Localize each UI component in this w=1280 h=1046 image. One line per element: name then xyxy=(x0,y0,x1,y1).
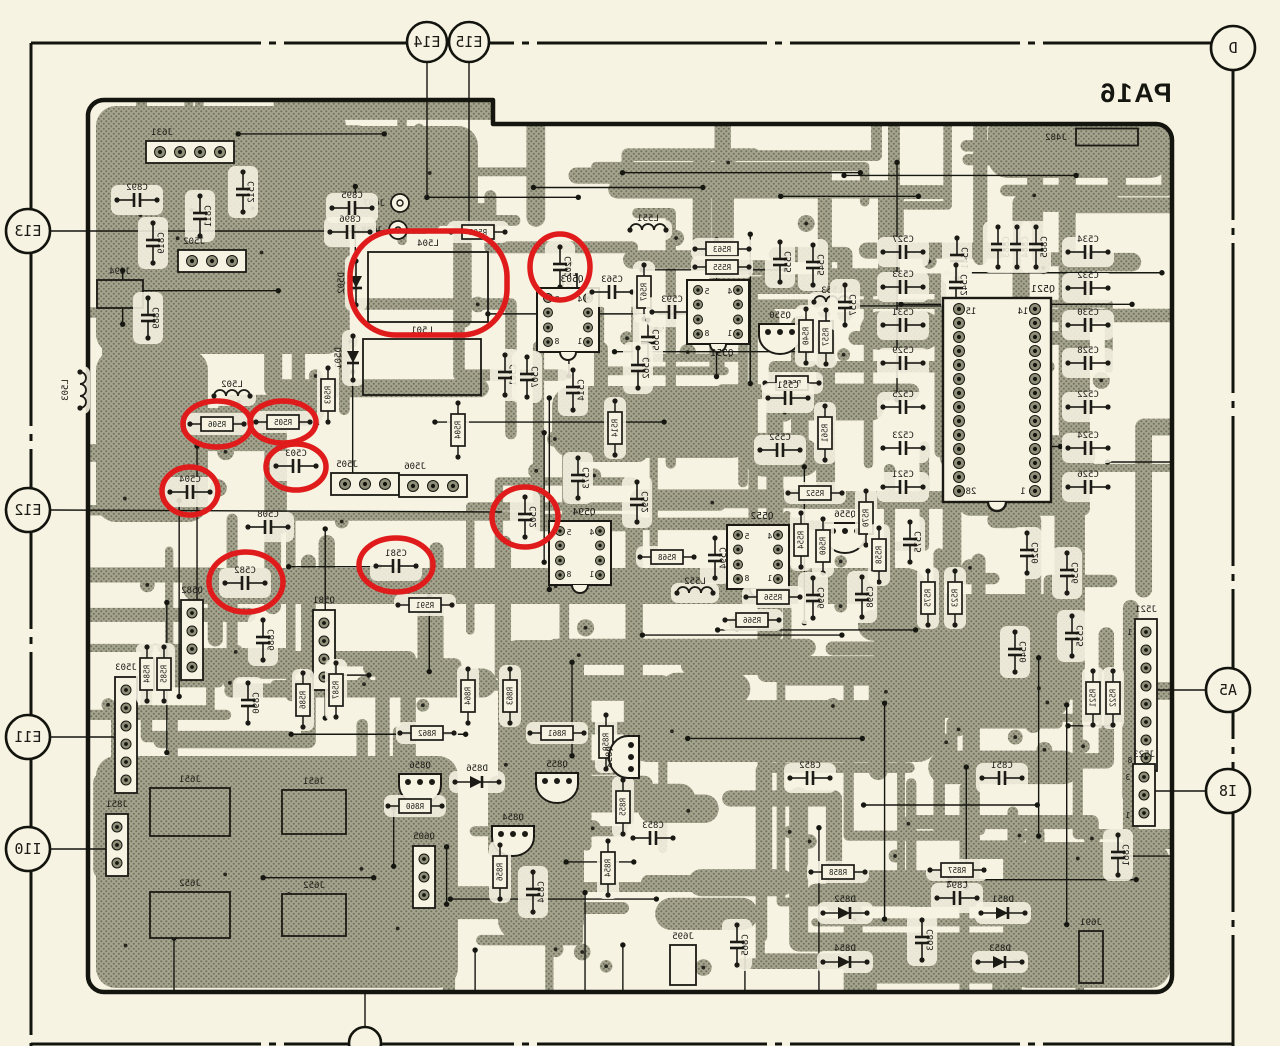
svg-text:C819: C819 xyxy=(157,232,167,254)
svg-text:J631: J631 xyxy=(151,128,173,138)
svg-text:C525: C525 xyxy=(892,390,914,400)
svg-text:28: 28 xyxy=(966,487,977,497)
component-J506: J506 xyxy=(399,462,467,497)
svg-text:E11: E11 xyxy=(14,728,41,746)
svg-text:C853: C853 xyxy=(642,821,664,831)
component-R568: R568 xyxy=(636,546,698,568)
svg-text:C886: C886 xyxy=(267,629,277,651)
component-C555: C555 xyxy=(765,236,795,288)
component-C562: C562 xyxy=(623,342,653,394)
component-C520: C520 xyxy=(1012,527,1042,579)
svg-text:C542: C542 xyxy=(960,274,970,296)
svg-text:C582: C582 xyxy=(234,566,256,576)
component-R864: R864 xyxy=(457,665,479,727)
svg-text:Q550: Q550 xyxy=(769,311,791,321)
svg-text:1: 1 xyxy=(767,574,772,583)
svg-text:1: 1 xyxy=(1125,811,1130,820)
svg-text:R505: R505 xyxy=(274,418,292,427)
component-R506: R506 xyxy=(186,413,248,435)
component-C534: C534 xyxy=(1062,235,1114,267)
svg-text:C508: C508 xyxy=(257,510,279,520)
svg-text:I8: I8 xyxy=(1219,782,1237,800)
svg-text:Q605: Q605 xyxy=(413,832,435,842)
component-C512: C512 xyxy=(228,166,258,218)
component-C540: C540 xyxy=(1000,626,1030,678)
svg-text:C533: C533 xyxy=(892,270,914,280)
svg-text:J695: J695 xyxy=(672,932,694,942)
component-C503: C503 xyxy=(270,449,322,481)
grid-ref-E13: E13 xyxy=(6,209,50,253)
svg-text:Q552: Q552 xyxy=(751,511,774,522)
svg-text:C852: C852 xyxy=(799,761,821,771)
svg-text:R586: R586 xyxy=(299,691,308,710)
svg-text:R521: R521 xyxy=(1089,689,1098,707)
component-C524: C524 xyxy=(1062,431,1114,463)
component-J695: J695 xyxy=(670,932,696,985)
svg-text:C865: C865 xyxy=(741,934,751,956)
svg-text:8: 8 xyxy=(704,329,709,338)
svg-text:R561: R561 xyxy=(821,424,830,442)
component-C535: C535 xyxy=(1057,610,1087,662)
svg-text:R504: R504 xyxy=(454,421,463,440)
svg-text:C523: C523 xyxy=(892,431,914,441)
svg-text:E14: E14 xyxy=(413,33,440,51)
svg-text:1: 1 xyxy=(577,337,582,346)
svg-text:1: 1 xyxy=(1127,628,1132,637)
svg-text:C573: C573 xyxy=(582,467,592,489)
svg-text:E13: E13 xyxy=(14,222,41,240)
component-C504: C504 xyxy=(164,475,216,507)
component-C502: C502 xyxy=(510,491,540,543)
svg-text:C592: C592 xyxy=(641,491,651,513)
component-C529: C529 xyxy=(877,346,929,378)
component-R863: R863 xyxy=(499,665,521,727)
component-C819: C819 xyxy=(138,217,168,269)
svg-text:L503: L503 xyxy=(61,379,71,401)
svg-text:1: 1 xyxy=(727,329,732,338)
grid-ref-I10: I10 xyxy=(6,827,50,871)
svg-text:R585: R585 xyxy=(160,665,169,683)
svg-text:8: 8 xyxy=(554,337,559,346)
svg-text:C522: C522 xyxy=(1077,390,1099,400)
component-R523: R523 xyxy=(944,567,966,629)
svg-text:D853: D853 xyxy=(989,944,1011,954)
component-C507: C507 xyxy=(512,351,542,403)
grid-ref-E14: E14 xyxy=(407,22,447,62)
svg-text:1: 1 xyxy=(1020,487,1025,497)
component-C889: C889 xyxy=(133,292,163,344)
svg-text:8: 8 xyxy=(566,570,571,579)
component-C885: C885 xyxy=(1021,221,1051,273)
svg-text:R587: R587 xyxy=(332,681,341,699)
svg-text:J505: J505 xyxy=(336,460,358,470)
svg-text:5: 5 xyxy=(566,528,571,537)
svg-text:C895: C895 xyxy=(341,191,363,201)
component-C581: C581 xyxy=(370,549,422,581)
svg-text:C565: C565 xyxy=(652,329,662,351)
svg-text:5: 5 xyxy=(704,287,709,296)
component-R505: R505 xyxy=(252,411,314,433)
svg-text:C540: C540 xyxy=(1019,641,1029,663)
component-C563: C563 xyxy=(586,275,638,307)
component-C854: C854 xyxy=(518,866,548,918)
component-R857: R857 xyxy=(926,859,988,881)
svg-text:R567: R567 xyxy=(640,283,649,301)
svg-text:Q503: Q503 xyxy=(561,274,584,285)
svg-text:C563: C563 xyxy=(601,275,623,285)
component-C890: C890 xyxy=(233,677,263,729)
grid-ref-E11: E11 xyxy=(6,715,50,759)
svg-text:4: 4 xyxy=(589,528,594,537)
svg-text:Q582: Q582 xyxy=(181,586,203,596)
component-C892: C892 xyxy=(111,183,163,215)
component-C551: C551 xyxy=(762,381,814,413)
pcb-diagram: J631C892C811C512C819J502JG94C889L503L502… xyxy=(0,0,1280,1046)
svg-text:L504: L504 xyxy=(417,239,439,249)
component-C522: C522 xyxy=(1062,390,1114,422)
svg-text:A5: A5 xyxy=(1219,681,1237,699)
svg-text:Q856: Q856 xyxy=(409,761,431,771)
component-C521: C521 xyxy=(877,470,929,502)
svg-text:L552: L552 xyxy=(684,577,706,587)
svg-text:R861: R861 xyxy=(548,729,566,738)
svg-text:R864: R864 xyxy=(464,687,473,706)
svg-text:R556: R556 xyxy=(763,593,782,602)
svg-text:C861: C861 xyxy=(1122,844,1132,866)
svg-text:R575: R575 xyxy=(924,589,933,607)
component-C573: C573 xyxy=(563,452,593,504)
component-C523: C523 xyxy=(877,431,929,463)
svg-text:C892: C892 xyxy=(126,183,148,193)
svg-text:C575: C575 xyxy=(914,531,924,553)
svg-text:Q853: Q853 xyxy=(605,746,615,768)
component-C545: C545 xyxy=(798,239,828,291)
svg-text:J651: J651 xyxy=(303,777,325,787)
svg-text:C512: C512 xyxy=(247,181,257,203)
svg-text:Q854: Q854 xyxy=(502,813,524,823)
component-C528: C528 xyxy=(1062,346,1114,378)
component-C526: C526 xyxy=(1062,470,1114,502)
component-C531: C531 xyxy=(877,308,929,340)
component-R587: R587 xyxy=(325,659,347,721)
component-R575: R575 xyxy=(917,567,939,629)
svg-text:R856: R856 xyxy=(496,863,505,882)
component-R556: R556 xyxy=(742,586,804,608)
component-R561: R561 xyxy=(814,402,836,464)
component-R522: R522 xyxy=(1102,667,1124,729)
svg-text:1: 1 xyxy=(589,570,594,579)
component-J503: J503 xyxy=(115,663,137,793)
svg-text:L551: L551 xyxy=(637,214,659,224)
component-C598: C598 xyxy=(847,571,877,623)
component-C533: C533 xyxy=(877,270,929,302)
component-R560: R560 xyxy=(812,515,834,577)
component-R858: R858 xyxy=(807,861,869,883)
svg-text:15: 15 xyxy=(966,307,977,317)
svg-text:C896: C896 xyxy=(339,215,361,225)
svg-text:3: 3 xyxy=(1125,773,1130,782)
svg-text:J652: J652 xyxy=(179,879,201,889)
svg-text:R857: R857 xyxy=(948,866,966,875)
svg-text:J502: J502 xyxy=(183,237,205,247)
svg-text:C581: C581 xyxy=(385,549,407,559)
board-name-label: PA16 xyxy=(1085,78,1185,109)
component-C811: C811 xyxy=(185,190,215,242)
component-R856: R856 xyxy=(489,841,511,903)
component-C525: C525 xyxy=(877,390,929,422)
component-R854: R854 xyxy=(597,837,619,899)
svg-text:C526: C526 xyxy=(1077,470,1099,480)
svg-text:R591: R591 xyxy=(416,601,434,610)
component-R585: R585 xyxy=(153,643,175,705)
svg-text:R523: R523 xyxy=(951,589,960,607)
svg-text:C854: C854 xyxy=(537,881,547,903)
component-R540: R540 xyxy=(795,305,817,367)
svg-text:R584: R584 xyxy=(143,665,152,684)
svg-text:R566: R566 xyxy=(742,616,761,625)
svg-text:J652: J652 xyxy=(303,881,325,891)
svg-text:E12: E12 xyxy=(14,501,41,519)
component-C530: C530 xyxy=(1062,308,1114,340)
component-C592: C592 xyxy=(622,476,652,528)
svg-text:C545: C545 xyxy=(817,254,827,276)
svg-text:R863: R863 xyxy=(506,687,515,705)
grid-ref-D: D xyxy=(1211,26,1255,70)
svg-text:L502: L502 xyxy=(221,380,243,390)
component-R862: R862 xyxy=(396,722,458,744)
svg-text:C507: C507 xyxy=(531,366,541,388)
component-C536: C536 xyxy=(1052,547,1082,599)
svg-text:C894: C894 xyxy=(946,881,968,891)
grid-ref-E12: E12 xyxy=(6,488,50,532)
svg-text:D851: D851 xyxy=(992,895,1014,905)
component-Q521: 1514281Q521 xyxy=(943,284,1055,511)
svg-text:R563: R563 xyxy=(713,245,731,254)
svg-text:C531: C531 xyxy=(892,308,914,318)
svg-text:J523: J523 xyxy=(1133,750,1155,760)
svg-text:C890: C890 xyxy=(252,692,262,714)
svg-text:C532: C532 xyxy=(1077,271,1099,281)
svg-text:R503: R503 xyxy=(324,386,333,404)
component-C851: C851 xyxy=(976,761,1028,793)
svg-text:J691: J691 xyxy=(1080,918,1102,928)
svg-text:C552: C552 xyxy=(769,433,791,443)
svg-text:J851: J851 xyxy=(106,800,128,810)
svg-text:R506: R506 xyxy=(207,420,226,429)
svg-text:C502: C502 xyxy=(529,506,539,528)
svg-text:8: 8 xyxy=(1127,756,1132,765)
grid-ref-I8: I8 xyxy=(1206,769,1250,813)
component-R586: R586 xyxy=(292,669,314,731)
svg-text:E15: E15 xyxy=(455,33,482,51)
svg-text:Q551: Q551 xyxy=(710,348,733,359)
svg-text:R560: R560 xyxy=(819,537,828,556)
component-Q582: Q582 xyxy=(181,586,203,680)
grid-ref-A5: A5 xyxy=(1206,668,1250,712)
svg-text:C811: C811 xyxy=(204,205,214,227)
svg-text:R557: R557 xyxy=(822,328,831,346)
svg-text:C535: C535 xyxy=(1076,625,1086,647)
component-R861: R861 xyxy=(526,722,588,744)
svg-text:C503: C503 xyxy=(285,449,307,459)
svg-text:4: 4 xyxy=(767,532,772,541)
component-J691: J691 xyxy=(1079,918,1103,983)
svg-text:JG94: JG94 xyxy=(109,267,131,277)
svg-text:C529: C529 xyxy=(892,346,914,356)
svg-text:R862: R862 xyxy=(418,729,436,738)
component-R552: R552 xyxy=(784,482,846,504)
component-C552: C552 xyxy=(754,433,806,465)
svg-text:R855: R855 xyxy=(619,798,628,816)
svg-text:4: 4 xyxy=(727,287,732,296)
component-C202: C202 xyxy=(545,241,575,293)
svg-text:8: 8 xyxy=(744,574,749,583)
pcb-scan-page: J631C892C811C512C819J502JG94C889L503L502… xyxy=(0,0,1280,1046)
component-C575: C575 xyxy=(895,516,925,568)
svg-text:I10: I10 xyxy=(14,840,41,858)
svg-text:C885: C885 xyxy=(1040,236,1050,258)
component-C514: C514 xyxy=(558,364,588,416)
svg-text:Q521: Q521 xyxy=(1031,284,1055,295)
component-C508: C508 xyxy=(242,510,294,542)
svg-text:R552: R552 xyxy=(806,489,824,498)
svg-text:C534: C534 xyxy=(1077,235,1099,245)
svg-text:D502: D502 xyxy=(337,272,347,294)
svg-text:J521: J521 xyxy=(1135,605,1157,615)
svg-text:C524: C524 xyxy=(1077,431,1099,441)
svg-text:C551: C551 xyxy=(777,381,799,391)
grid-ref-cut xyxy=(349,1027,381,1046)
svg-text:C593: C593 xyxy=(661,295,683,305)
component-R504: R504 xyxy=(447,399,469,461)
component-C863: C863 xyxy=(907,914,937,966)
svg-text:C889: C889 xyxy=(152,307,162,329)
svg-text:R554: R554 xyxy=(797,531,806,550)
svg-text:J503: J503 xyxy=(115,663,137,673)
svg-text:J482: J482 xyxy=(1045,133,1067,143)
component-C865: C865 xyxy=(722,919,752,971)
svg-text:Q556: Q556 xyxy=(834,510,856,520)
component-R514: R514 xyxy=(604,397,626,459)
component-C532: C532 xyxy=(1062,271,1114,303)
svg-text:D854: D854 xyxy=(834,944,856,954)
svg-text:C598: C598 xyxy=(866,586,876,608)
component-C886: C886 xyxy=(248,614,278,666)
svg-text:C863: C863 xyxy=(926,929,936,951)
component-R554: R554 xyxy=(790,509,812,571)
svg-text:C530: C530 xyxy=(1077,308,1099,318)
svg-text:R555: R555 xyxy=(713,263,731,272)
component-R860: R860 xyxy=(384,795,446,817)
grid-ref-E15: E15 xyxy=(449,22,489,62)
svg-text:Q594: Q594 xyxy=(572,507,595,518)
svg-text:R540: R540 xyxy=(802,327,811,346)
svg-text:C557: C557 xyxy=(849,294,859,316)
svg-text:R522: R522 xyxy=(1109,689,1118,707)
svg-text:5: 5 xyxy=(744,532,749,541)
svg-text:C596: C596 xyxy=(817,587,827,609)
component-C582: C582 xyxy=(219,566,271,598)
svg-text:C555: C555 xyxy=(784,251,794,273)
component-R521: R521 xyxy=(1082,667,1104,729)
svg-text:C504: C504 xyxy=(179,475,201,485)
svg-text:C521: C521 xyxy=(892,470,914,480)
svg-text:R568: R568 xyxy=(657,553,676,562)
component-C527: C527 xyxy=(877,235,929,267)
component-C861: C861 xyxy=(1103,829,1133,881)
svg-text:C528: C528 xyxy=(1077,346,1099,356)
component-R591: R591 xyxy=(394,594,456,616)
component-C557: C557 xyxy=(830,279,860,331)
svg-text:C562: C562 xyxy=(642,357,652,379)
svg-text:C514: C514 xyxy=(577,379,587,401)
svg-text:R514: R514 xyxy=(611,419,620,438)
component-R503: R503 xyxy=(317,364,339,426)
component-C852: C852 xyxy=(784,761,836,793)
svg-text:R854: R854 xyxy=(604,859,613,878)
svg-text:C520: C520 xyxy=(1031,542,1041,564)
svg-text:R858: R858 xyxy=(828,868,847,877)
svg-text:R558: R558 xyxy=(875,546,884,565)
component-J505: J505 xyxy=(331,460,399,495)
svg-text:J651: J651 xyxy=(179,775,201,785)
svg-text:C536: C536 xyxy=(1071,562,1081,584)
svg-text:C527: C527 xyxy=(892,235,914,245)
svg-text:D856: D856 xyxy=(466,764,488,774)
svg-text:14: 14 xyxy=(1018,307,1029,317)
svg-text:D852: D852 xyxy=(834,895,856,905)
component-D856: D856 xyxy=(449,764,505,793)
svg-text:C851: C851 xyxy=(991,761,1013,771)
svg-text:Q581: Q581 xyxy=(313,596,335,606)
svg-text:Q855: Q855 xyxy=(546,760,568,770)
svg-text:J506: J506 xyxy=(404,462,426,472)
svg-text:D: D xyxy=(1228,39,1237,57)
svg-text:R860: R860 xyxy=(405,802,424,811)
component-R555: R555 xyxy=(691,256,753,278)
component-L503: L503 xyxy=(61,366,90,414)
component-C853: C853 xyxy=(627,821,679,853)
svg-text:R570: R570 xyxy=(862,509,871,528)
component-R566: R566 xyxy=(721,609,783,631)
